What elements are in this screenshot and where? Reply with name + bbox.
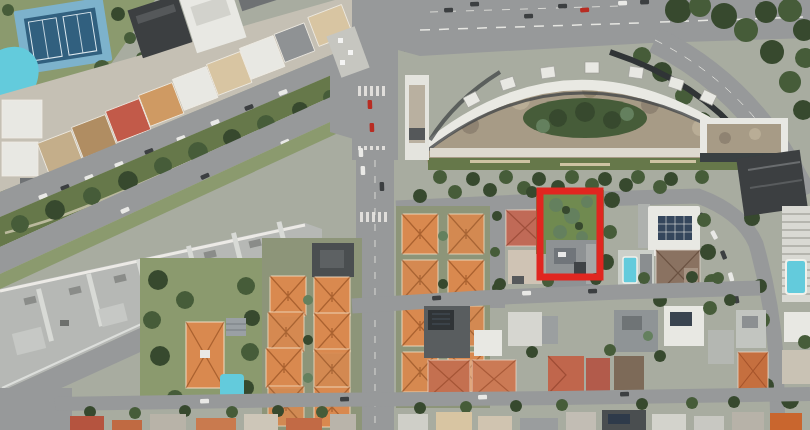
metal-roof-annex	[226, 318, 246, 336]
aerial-scene	[0, 0, 810, 430]
large-orange-villa	[186, 322, 224, 388]
satellite-map-canvas[interactable]	[0, 0, 810, 430]
crescent-courtyard-garden	[523, 98, 647, 138]
colonnade	[430, 148, 742, 157]
rooftop-pool	[786, 260, 806, 294]
villa-garden-block	[140, 258, 262, 406]
